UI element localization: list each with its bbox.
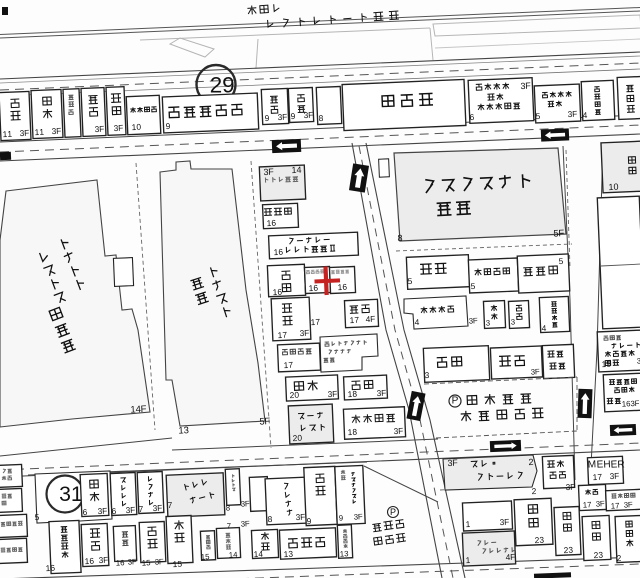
svg-text:F: F [118, 123, 124, 133]
svg-text:F: F [504, 517, 510, 527]
svg-text:F: F [245, 499, 250, 508]
svg-text:P: P [452, 396, 459, 407]
svg-text:2: 2 [531, 486, 536, 496]
svg-text:4: 4 [258, 549, 263, 559]
svg-text:3: 3 [486, 318, 491, 327]
svg-text:6: 6 [313, 283, 318, 293]
svg-text:8: 8 [267, 514, 272, 524]
svg-text:F: F [304, 328, 310, 338]
svg-text:7: 7 [288, 360, 293, 370]
svg-text:F: F [132, 557, 137, 566]
svg-text:P: P [390, 507, 396, 517]
svg-text:6: 6 [271, 218, 276, 228]
svg-text:3: 3 [568, 545, 573, 555]
svg-text:9: 9 [306, 516, 311, 526]
svg-text:F: F [570, 482, 576, 492]
svg-text:4: 4 [296, 165, 301, 175]
svg-text:F: F [381, 388, 387, 398]
svg-text:6: 6 [111, 506, 116, 516]
svg-text:3: 3 [539, 535, 544, 545]
svg-text:F: F [452, 458, 458, 468]
svg-text:F: F [264, 416, 270, 427]
svg-text:F: F [358, 512, 363, 521]
svg-text:6: 6 [82, 507, 87, 517]
svg-text:6: 6 [277, 287, 282, 297]
svg-text:2: 2 [210, 73, 222, 98]
svg-text:F: F [159, 557, 164, 566]
svg-text:6: 6 [342, 282, 347, 292]
svg-text:F: F [24, 128, 30, 138]
svg-text:6: 6 [89, 556, 94, 566]
svg-text:0: 0 [297, 433, 302, 443]
svg-text:7: 7 [138, 504, 143, 514]
svg-text:3: 3 [424, 370, 429, 380]
svg-text:F: F [268, 167, 274, 177]
svg-text:F: F [600, 499, 605, 508]
svg-text:5: 5 [606, 359, 611, 369]
svg-text:F: F [157, 503, 163, 513]
svg-text:7: 7 [282, 330, 287, 340]
svg-text:3: 3 [288, 549, 293, 559]
svg-text:F: F [525, 81, 531, 91]
svg-text:F: F [558, 228, 564, 239]
svg-text:5: 5 [407, 276, 412, 286]
svg-text:F: F [634, 399, 639, 408]
svg-text:7: 7 [227, 521, 232, 530]
svg-text:2: 2 [616, 553, 621, 563]
svg-text:8: 8 [352, 389, 357, 399]
svg-text:9: 9 [165, 121, 170, 131]
svg-text:8: 8 [318, 113, 323, 123]
svg-text:9: 9 [339, 513, 344, 522]
svg-text:3: 3 [511, 317, 516, 326]
svg-text:F: F [473, 316, 478, 325]
svg-text:F: F [300, 512, 306, 522]
svg-text:4: 4 [541, 323, 546, 333]
svg-text:9: 9 [290, 111, 295, 121]
svg-text:3: 3 [637, 356, 640, 365]
svg-text:F: F [308, 110, 314, 120]
svg-text:2: 2 [528, 457, 533, 467]
svg-text:7: 7 [354, 315, 359, 325]
svg-text:7: 7 [587, 500, 592, 509]
svg-text:6: 6 [469, 112, 474, 122]
svg-text:6: 6 [278, 247, 283, 257]
svg-text:9: 9 [264, 113, 269, 123]
svg-text:5: 5 [34, 512, 39, 522]
svg-text:F: F [282, 112, 288, 122]
svg-text:7: 7 [597, 472, 602, 482]
svg-text:F: F [130, 505, 136, 515]
svg-text:0: 0 [294, 390, 299, 400]
svg-text:3: 3 [183, 425, 189, 436]
svg-text:F: F [510, 552, 516, 562]
svg-text:3: 3 [59, 482, 71, 506]
svg-text:F: F [245, 519, 250, 528]
svg-text:F: F [56, 126, 62, 136]
svg-text:4: 4 [582, 110, 587, 120]
svg-text:1: 1 [39, 127, 44, 137]
svg-text:M: M [588, 459, 597, 470]
svg-text:F: F [535, 367, 540, 376]
svg-text:7: 7 [167, 500, 172, 510]
svg-text:F: F [140, 404, 146, 415]
svg-text:F: F [99, 124, 105, 134]
svg-text:0: 0 [613, 182, 618, 192]
svg-text:6: 6 [50, 563, 55, 573]
svg-text:8: 8 [226, 503, 231, 512]
svg-text:8: 8 [352, 427, 357, 437]
svg-text:F: F [398, 426, 404, 436]
svg-text:5: 5 [558, 256, 563, 266]
svg-text:R: R [617, 459, 625, 470]
svg-text:4: 4 [414, 317, 419, 327]
svg-text:F: F [614, 471, 620, 481]
svg-text:5: 5 [535, 111, 540, 121]
svg-text:F: F [370, 314, 376, 324]
svg-text:3: 3 [598, 550, 603, 560]
svg-text:F: F [332, 389, 338, 399]
svg-text:F: F [102, 506, 108, 516]
svg-text:8: 8 [397, 233, 402, 243]
svg-text:1: 1 [465, 555, 470, 565]
svg-text:0: 0 [136, 122, 141, 132]
svg-text:F: F [628, 500, 633, 509]
svg-text:1: 1 [7, 129, 12, 139]
svg-text:7: 7 [615, 501, 620, 510]
svg-text:1: 1 [465, 519, 470, 529]
svg-text:F: F [572, 109, 578, 119]
svg-text:3: 3 [344, 549, 349, 558]
svg-text:F: F [103, 555, 109, 565]
svg-text:6: 6 [120, 558, 125, 567]
svg-text:5: 5 [470, 281, 475, 291]
svg-text:5: 5 [177, 559, 182, 569]
svg-text:7: 7 [315, 317, 320, 327]
